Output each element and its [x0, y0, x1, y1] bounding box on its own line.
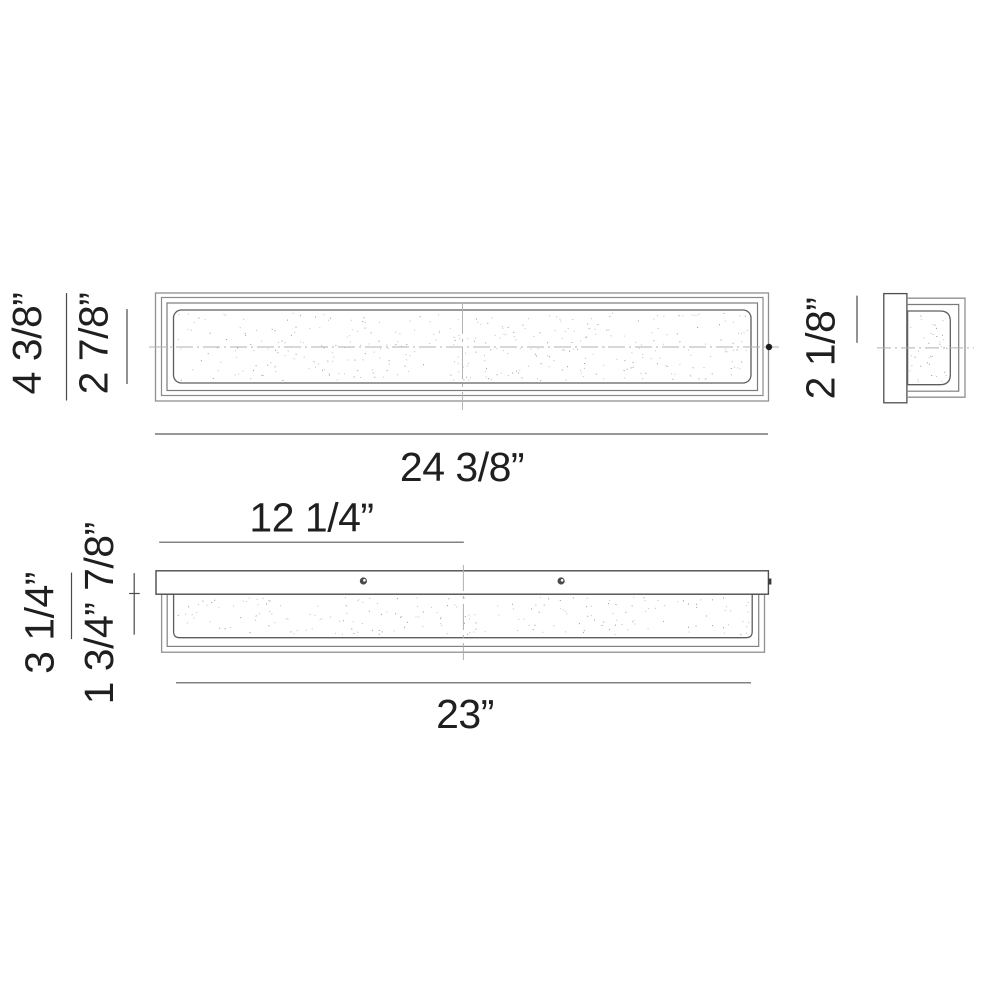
svg-text:23”: 23” — [436, 691, 494, 737]
svg-text:7/8”: 7/8” — [76, 522, 122, 591]
svg-text:4 3/8”: 4 3/8” — [4, 293, 50, 395]
svg-text:12 1/4”: 12 1/4” — [249, 495, 373, 541]
svg-text:3 1/4”: 3 1/4” — [17, 572, 63, 674]
svg-text:24 3/8”: 24 3/8” — [400, 444, 524, 490]
svg-text:2 7/8”: 2 7/8” — [71, 293, 117, 395]
svg-text:1 3/4”: 1 3/4” — [76, 603, 122, 705]
svg-text:2 1/8”: 2 1/8” — [798, 298, 844, 400]
